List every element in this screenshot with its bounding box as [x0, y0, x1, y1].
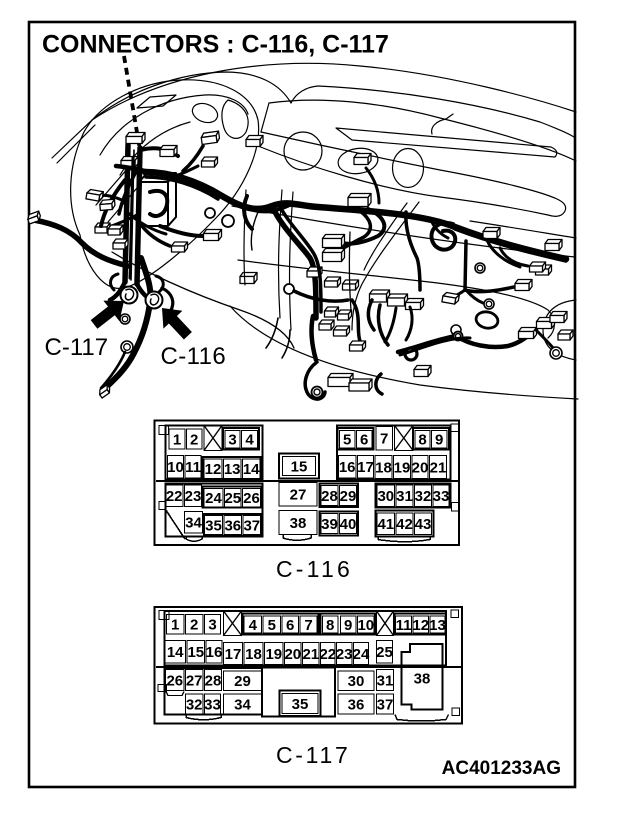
svg-text:24: 24 — [205, 490, 222, 507]
svg-text:16: 16 — [206, 644, 223, 661]
svg-text:39: 39 — [321, 516, 338, 533]
svg-text:23: 23 — [185, 488, 202, 505]
svg-text:14: 14 — [167, 644, 184, 661]
svg-text:8: 8 — [418, 432, 426, 449]
svg-text:7: 7 — [380, 431, 388, 448]
svg-text:19: 19 — [265, 646, 282, 663]
svg-text:36: 36 — [224, 517, 241, 534]
svg-text:12: 12 — [205, 461, 222, 478]
svg-text:41: 41 — [377, 516, 394, 533]
svg-text:1: 1 — [173, 431, 181, 448]
svg-text:3: 3 — [208, 617, 216, 634]
svg-text:15: 15 — [291, 458, 308, 475]
svg-text:20: 20 — [284, 646, 301, 663]
svg-text:8: 8 — [326, 617, 334, 634]
svg-text:22: 22 — [166, 488, 183, 505]
svg-text:23: 23 — [336, 646, 353, 663]
svg-text:43: 43 — [415, 516, 432, 533]
svg-text:24: 24 — [353, 646, 370, 663]
svg-text:5: 5 — [268, 617, 276, 634]
svg-text:28: 28 — [205, 672, 222, 689]
svg-text:36: 36 — [348, 696, 365, 713]
svg-text:10: 10 — [167, 459, 184, 476]
svg-text:16: 16 — [339, 459, 356, 476]
svg-text:7: 7 — [304, 617, 312, 634]
svg-text:2: 2 — [190, 617, 198, 634]
svg-text:34: 34 — [234, 696, 251, 713]
svg-text:27: 27 — [290, 487, 307, 504]
svg-text:CONNECTORS : C-116, C-117: CONNECTORS : C-116, C-117 — [42, 31, 389, 59]
svg-text:AC401233AG: AC401233AG — [442, 758, 561, 779]
svg-text:21: 21 — [430, 459, 447, 476]
svg-text:26: 26 — [243, 490, 260, 507]
svg-text:29: 29 — [234, 673, 251, 690]
svg-text:18: 18 — [245, 646, 262, 663]
svg-text:C-117: C-117 — [276, 742, 350, 768]
svg-text:18: 18 — [375, 459, 392, 476]
svg-text:4: 4 — [249, 617, 258, 634]
svg-text:11: 11 — [185, 459, 201, 476]
svg-text:6: 6 — [360, 432, 368, 449]
svg-text:C-116: C-116 — [161, 343, 227, 370]
svg-text:21: 21 — [302, 646, 319, 663]
svg-text:29: 29 — [340, 488, 357, 505]
svg-text:34: 34 — [185, 515, 202, 532]
svg-text:14: 14 — [243, 461, 260, 478]
svg-text:26: 26 — [166, 672, 183, 689]
svg-text:38: 38 — [290, 515, 307, 532]
svg-text:15: 15 — [187, 644, 204, 661]
svg-text:33: 33 — [204, 696, 221, 713]
svg-text:25: 25 — [224, 490, 241, 507]
svg-text:3: 3 — [228, 432, 236, 449]
svg-text:37: 37 — [243, 517, 260, 534]
svg-text:27: 27 — [186, 672, 203, 689]
svg-text:4: 4 — [245, 432, 254, 449]
svg-text:38: 38 — [414, 671, 431, 688]
svg-text:12: 12 — [412, 617, 429, 634]
svg-text:9: 9 — [344, 617, 352, 634]
svg-text:11: 11 — [396, 617, 412, 634]
svg-text:32: 32 — [415, 488, 432, 505]
svg-text:31: 31 — [396, 488, 413, 505]
svg-text:10: 10 — [357, 617, 374, 634]
svg-text:17: 17 — [225, 646, 242, 663]
svg-text:28: 28 — [321, 488, 338, 505]
svg-text:31: 31 — [377, 672, 394, 689]
svg-text:37: 37 — [377, 696, 394, 713]
svg-text:20: 20 — [412, 459, 429, 476]
svg-text:30: 30 — [348, 673, 365, 690]
svg-text:35: 35 — [292, 696, 309, 713]
svg-text:2: 2 — [190, 431, 198, 448]
svg-text:22: 22 — [319, 646, 336, 663]
svg-text:9: 9 — [435, 432, 443, 449]
svg-text:35: 35 — [205, 517, 222, 534]
svg-text:40: 40 — [340, 516, 357, 533]
svg-text:25: 25 — [376, 644, 393, 661]
svg-text:C-117: C-117 — [45, 334, 109, 361]
svg-text:5: 5 — [343, 432, 351, 449]
svg-text:30: 30 — [377, 488, 394, 505]
svg-text:42: 42 — [396, 516, 413, 533]
svg-text:32: 32 — [186, 696, 203, 713]
svg-text:33: 33 — [433, 488, 450, 505]
svg-text:13: 13 — [224, 461, 241, 478]
svg-text:13: 13 — [429, 617, 446, 634]
svg-text:19: 19 — [394, 459, 411, 476]
svg-text:17: 17 — [357, 459, 374, 476]
svg-text:1: 1 — [171, 617, 179, 634]
svg-text:6: 6 — [286, 617, 294, 634]
svg-text:C-116: C-116 — [276, 556, 353, 582]
